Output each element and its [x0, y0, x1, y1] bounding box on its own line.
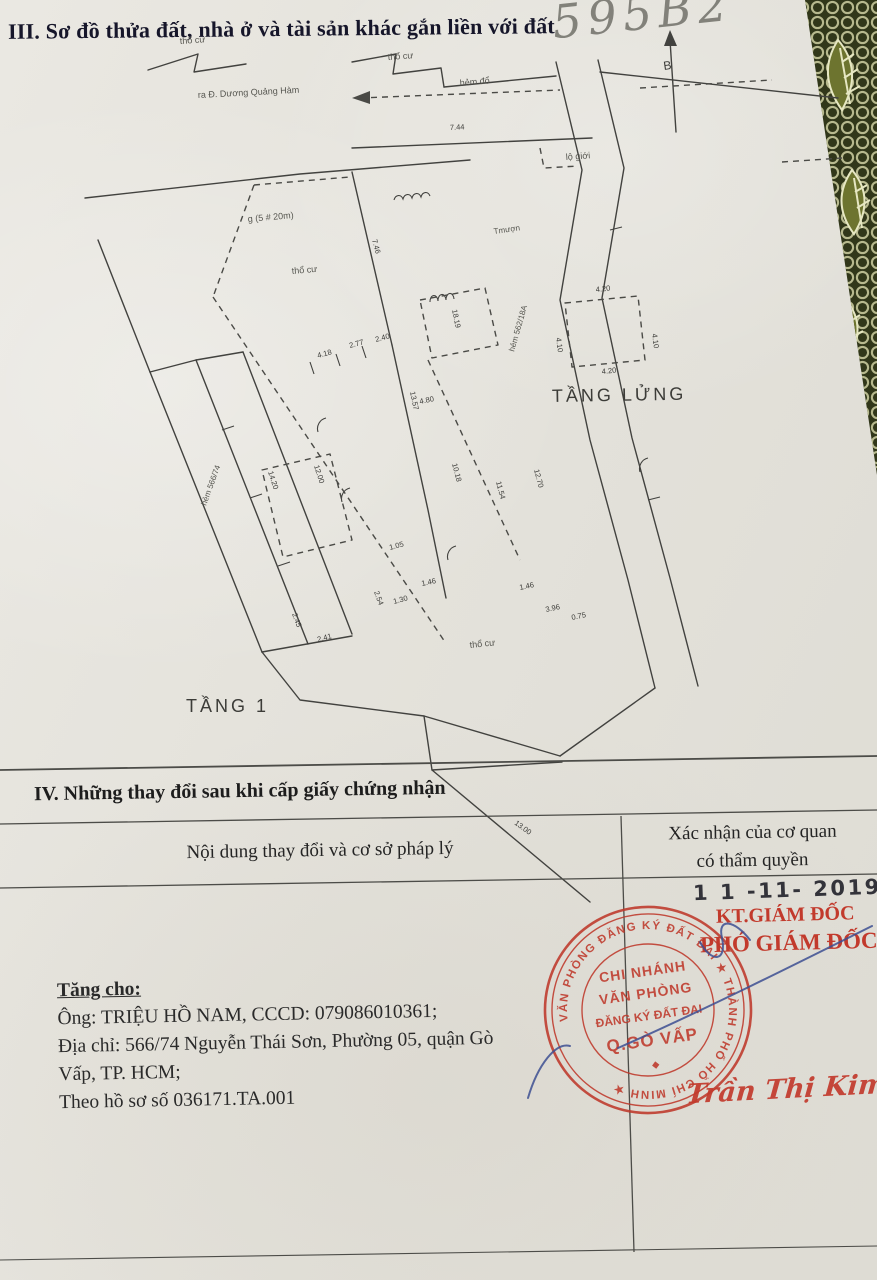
scanned-land-certificate-page: III. Sơ đồ thửa đất, nhà ở và tài sản kh… [0, 0, 877, 1280]
stamp-diamond-mark: ◆ [651, 1059, 661, 1070]
stamp-center-line4: Q.GÒ VẤP [605, 1024, 699, 1056]
